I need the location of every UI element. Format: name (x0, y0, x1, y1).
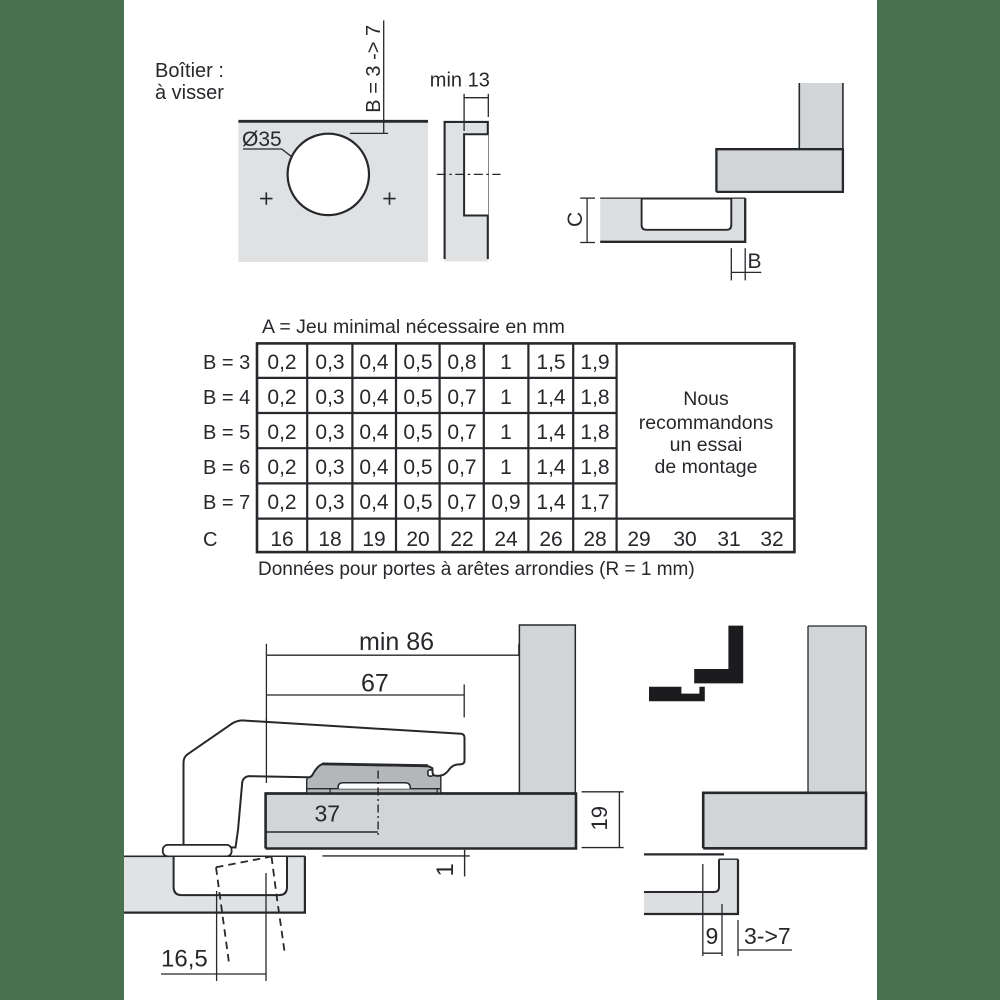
svg-text:0,2: 0,2 (267, 386, 296, 409)
svg-text:1,8: 1,8 (580, 421, 609, 444)
svg-text:0,2: 0,2 (267, 421, 296, 444)
svg-text:26: 26 (539, 528, 562, 551)
svg-text:1,5: 1,5 (536, 351, 565, 374)
svg-text:31: 31 (717, 528, 740, 551)
svg-text:37: 37 (315, 801, 341, 827)
svg-text:1,8: 1,8 (580, 386, 609, 409)
svg-text:1: 1 (432, 863, 459, 876)
svg-text:de montage: de montage (655, 456, 758, 478)
svg-text:0,5: 0,5 (403, 421, 432, 444)
svg-text:0,5: 0,5 (403, 386, 432, 409)
svg-text:0,8: 0,8 (447, 351, 476, 374)
svg-text:0,5: 0,5 (403, 456, 432, 479)
svg-text:0,3: 0,3 (315, 491, 344, 514)
svg-text:0,4: 0,4 (359, 421, 389, 444)
svg-text:9: 9 (706, 923, 719, 949)
svg-text:1,7: 1,7 (580, 491, 609, 514)
svg-text:1,4: 1,4 (536, 421, 566, 444)
svg-text:1: 1 (500, 351, 512, 374)
svg-text:Données pour portes à arêtes a: Données pour portes à arêtes arrondies (… (258, 559, 695, 580)
svg-text:0,3: 0,3 (315, 456, 344, 479)
svg-text:Boîtier :: Boîtier : (155, 60, 224, 82)
svg-text:18: 18 (318, 528, 341, 551)
svg-text:un essai: un essai (670, 434, 743, 456)
svg-text:67: 67 (361, 670, 389, 698)
svg-text:0,2: 0,2 (267, 491, 296, 514)
svg-text:16,5: 16,5 (161, 946, 208, 973)
svg-text:B = 4: B = 4 (203, 387, 250, 409)
svg-text:0,7: 0,7 (447, 491, 476, 514)
svg-text:0,7: 0,7 (447, 421, 476, 444)
svg-text:1,4: 1,4 (536, 456, 566, 479)
svg-text:0,5: 0,5 (403, 351, 432, 374)
svg-text:1,4: 1,4 (536, 386, 566, 409)
svg-text:0,3: 0,3 (315, 421, 344, 444)
svg-text:32: 32 (760, 528, 783, 551)
svg-text:0,3: 0,3 (315, 351, 344, 374)
svg-text:0,7: 0,7 (447, 456, 476, 479)
svg-text:1: 1 (500, 456, 512, 479)
svg-text:B = 3: B = 3 (203, 352, 250, 374)
svg-text:24: 24 (494, 528, 518, 551)
svg-text:recommandons: recommandons (639, 412, 774, 434)
svg-text:0,3: 0,3 (315, 386, 344, 409)
svg-text:B = 7: B = 7 (203, 492, 250, 514)
svg-text:min 86: min 86 (359, 628, 434, 656)
svg-text:B = 6: B = 6 (203, 457, 250, 479)
svg-text:1,4: 1,4 (536, 491, 566, 514)
svg-text:19: 19 (362, 528, 385, 551)
svg-text:0,9: 0,9 (491, 491, 520, 514)
svg-text:22: 22 (450, 528, 473, 551)
svg-text:Ø35: Ø35 (242, 128, 282, 151)
svg-text:0,2: 0,2 (267, 456, 296, 479)
svg-text:29: 29 (627, 528, 650, 551)
svg-text:C: C (203, 529, 217, 551)
svg-text:28: 28 (583, 528, 606, 551)
svg-text:1,9: 1,9 (580, 351, 609, 374)
svg-text:à visser: à visser (155, 82, 224, 104)
svg-text:0,7: 0,7 (447, 386, 476, 409)
svg-text:B = 3 -> 7: B = 3 -> 7 (363, 25, 385, 113)
svg-text:0,4: 0,4 (359, 386, 389, 409)
svg-text:16: 16 (270, 528, 293, 551)
svg-text:3->7: 3->7 (744, 923, 791, 949)
svg-text:0,4: 0,4 (359, 456, 389, 479)
svg-text:30: 30 (673, 528, 696, 551)
svg-text:1,8: 1,8 (580, 456, 609, 479)
svg-text:19: 19 (587, 806, 612, 830)
svg-text:1: 1 (500, 386, 512, 409)
svg-text:20: 20 (406, 528, 429, 551)
svg-text:Nous: Nous (683, 388, 729, 410)
svg-text:0,5: 0,5 (403, 491, 432, 514)
svg-text:B = 5: B = 5 (203, 422, 250, 444)
svg-text:B: B (748, 250, 762, 273)
svg-text:A = Jeu minimal nécessaire en: A = Jeu minimal nécessaire en mm (262, 316, 565, 338)
svg-text:C: C (564, 212, 587, 227)
svg-text:1: 1 (500, 421, 512, 444)
svg-text:min 13: min 13 (430, 70, 490, 92)
svg-text:0,4: 0,4 (359, 491, 389, 514)
svg-text:0,2: 0,2 (267, 351, 296, 374)
svg-text:0,4: 0,4 (359, 351, 389, 374)
